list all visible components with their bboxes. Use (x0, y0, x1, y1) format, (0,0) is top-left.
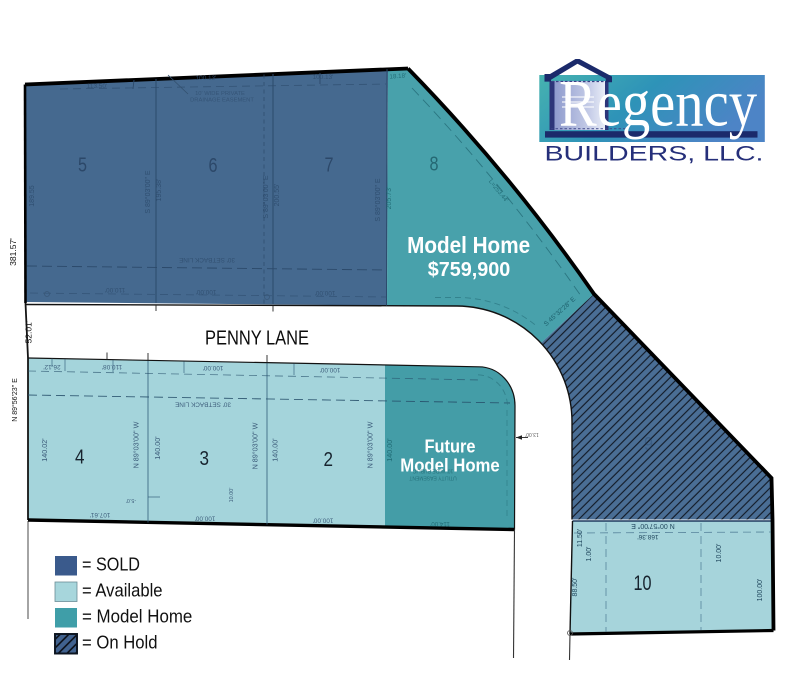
svg-text:= Model Home: = Model Home (82, 605, 192, 626)
svg-text:13.00': 13.00' (525, 431, 539, 437)
svg-text:UTILITY EASEMENT: UTILITY EASEMENT (409, 475, 456, 481)
svg-text:5: 5 (78, 155, 87, 177)
svg-text:$759,900: $759,900 (428, 258, 511, 281)
svg-text:110.00': 110.00' (105, 286, 125, 293)
svg-text:N 89°03'00" W: N 89°03'00" W (366, 421, 375, 468)
svg-text:BUILDERS, LLC.: BUILDERS, LLC. (545, 142, 764, 165)
svg-text:Future: Future (425, 435, 476, 456)
svg-text:18.18': 18.18' (389, 72, 406, 80)
svg-text:N 00°57'00" E: N 00°57'00" E (631, 522, 675, 530)
svg-text:S 89°03'00" E: S 89°03'00" E (262, 175, 270, 219)
svg-text:10: 10 (634, 572, 652, 595)
svg-text:100.00': 100.00' (757, 579, 764, 602)
svg-text:10.00': 10.00' (716, 544, 723, 563)
svg-text:1.00': 1.00' (586, 547, 593, 562)
svg-text:7: 7 (325, 155, 334, 177)
svg-text:381.57': 381.57' (8, 238, 18, 266)
svg-text:Regency: Regency (559, 67, 757, 141)
svg-text:88.50': 88.50' (572, 578, 579, 597)
svg-text:N 89°03'00" W: N 89°03'00" W (251, 422, 260, 469)
svg-text:Model Home: Model Home (407, 232, 530, 258)
svg-text:110.08': 110.08' (102, 363, 122, 370)
svg-text:189.55: 189.55 (29, 185, 36, 207)
svg-text:N 89°03'00" W: N 89°03'00" W (132, 421, 141, 468)
svg-text:100.00': 100.00' (313, 517, 334, 524)
svg-text:100.00': 100.00' (195, 515, 216, 522)
svg-text:100.00': 100.00' (196, 288, 217, 295)
svg-text:= SOLD: = SOLD (82, 553, 140, 574)
svg-text:100.13': 100.13' (313, 74, 334, 81)
svg-text:30' SETBACK LINE: 30' SETBACK LINE (179, 256, 235, 263)
svg-text:= On Hold: = On Hold (82, 631, 158, 652)
svg-text:140.00': 140.00' (153, 436, 162, 460)
svg-text:195.38': 195.38' (156, 179, 163, 202)
svg-text:26.12': 26.12' (43, 363, 60, 370)
svg-text:8: 8 (430, 154, 439, 176)
svg-text:-5.0': -5.0' (126, 497, 137, 503)
svg-text:N 89°56'23" E: N 89°56'23" E (11, 378, 19, 422)
svg-text:140.00': 140.00' (271, 438, 280, 462)
svg-text:= Available: = Available (82, 579, 163, 600)
svg-text:200.55': 200.55' (274, 184, 281, 207)
svg-text:S 89°03'00" E: S 89°03'00" E (144, 170, 152, 214)
svg-text:30' SETBACK LINE: 30' SETBACK LINE (175, 401, 231, 408)
svg-text:52.01': 52.01' (24, 320, 34, 343)
svg-text:10' WIDE PRIVATE: 10' WIDE PRIVATE (195, 91, 245, 97)
svg-text:140.00': 140.00' (385, 438, 394, 462)
svg-text:2: 2 (324, 449, 334, 471)
svg-text:100.00': 100.00' (315, 289, 336, 296)
svg-text:113.50': 113.50' (87, 83, 107, 90)
svg-text:140.02': 140.02' (40, 438, 49, 462)
svg-text:DRAINAGE EASEMENT: DRAINAGE EASEMENT (190, 98, 254, 104)
svg-text:100.00': 100.00' (203, 364, 224, 371)
svg-text:107.61': 107.61' (90, 511, 111, 518)
svg-text:S 89°03'00" E: S 89°03'00" E (374, 178, 382, 222)
svg-text:205.73': 205.73' (386, 187, 393, 210)
svg-text:11.50': 11.50' (577, 529, 584, 547)
svg-text:6: 6 (209, 155, 218, 177)
svg-text:10' WIDE PUBLIC: 10' WIDE PUBLIC (412, 468, 453, 474)
svg-text:9: 9 (644, 434, 653, 454)
svg-text:10.00': 10.00' (229, 488, 235, 503)
svg-text:4: 4 (75, 447, 85, 469)
svg-text:3: 3 (200, 448, 210, 470)
svg-text:PENNY LANE: PENNY LANE (205, 327, 309, 350)
svg-text:100.13': 100.13' (196, 75, 217, 82)
svg-text:168.36': 168.36' (637, 533, 658, 540)
svg-text:100.00': 100.00' (320, 366, 341, 373)
svg-text:114.00': 114.00' (430, 520, 450, 527)
